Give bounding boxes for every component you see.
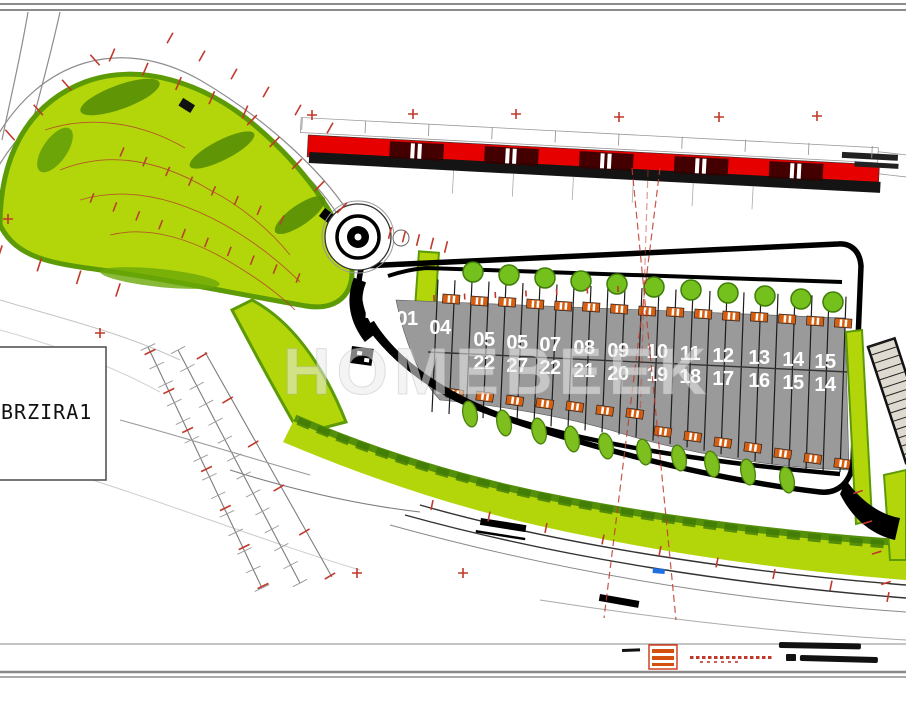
blue-mark xyxy=(653,568,665,574)
roof-icon xyxy=(626,408,644,419)
roof-icon xyxy=(498,297,516,307)
survey-tick xyxy=(199,400,213,407)
legend-caption-dash xyxy=(726,656,730,659)
roof-stripe xyxy=(447,295,450,302)
plot-number-bottom: 16 xyxy=(748,370,770,392)
roof-stripe xyxy=(648,308,651,315)
plot-number-top: 14 xyxy=(782,349,805,371)
legend-caption-dash xyxy=(762,656,766,659)
survey-tick xyxy=(163,388,174,393)
roof-body xyxy=(684,431,702,442)
watermark-text: HOMEBEEK xyxy=(283,334,712,408)
survey-cross-icon xyxy=(511,109,521,119)
right-hatched-building xyxy=(840,330,906,560)
survey-cross-icon xyxy=(812,111,822,121)
tree-icon xyxy=(823,292,843,312)
survey-tick xyxy=(284,561,298,568)
survey-tick xyxy=(222,397,232,403)
roof-body xyxy=(638,306,656,316)
survey-tick xyxy=(218,436,232,443)
survey-tick xyxy=(431,238,434,250)
legend-caption-dash xyxy=(720,656,724,659)
survey-tick xyxy=(246,566,260,573)
tree-icon xyxy=(681,280,701,300)
survey-cross-icon xyxy=(408,109,418,119)
red-building-strip xyxy=(298,118,906,218)
legend-caption-dash xyxy=(750,656,754,659)
roof-stripe xyxy=(811,317,814,324)
roof-icon xyxy=(774,448,792,459)
survey-tick xyxy=(158,381,172,388)
roof-body xyxy=(554,301,572,311)
roof-body xyxy=(750,312,768,322)
roof-stripe xyxy=(671,308,674,315)
roof-stripe xyxy=(564,303,567,310)
site-label-text: BRZIRA1 xyxy=(1,400,92,424)
survey-tick xyxy=(167,33,173,43)
tree-icon xyxy=(494,409,513,437)
survey-tick xyxy=(208,418,222,425)
survey-tick xyxy=(445,241,448,253)
roof-stripe xyxy=(508,299,511,306)
survey-tick xyxy=(428,124,429,136)
roof-body xyxy=(626,408,644,419)
roof-stripe xyxy=(788,316,791,323)
tree-icon xyxy=(529,417,548,445)
roof-stripe xyxy=(559,302,562,309)
legend-caption-dash xyxy=(738,656,742,659)
survey-cross-icon xyxy=(458,568,468,578)
roof-icon xyxy=(442,294,460,304)
survey-tick xyxy=(228,529,242,536)
roof-icon xyxy=(638,306,656,316)
roof-icon xyxy=(470,296,488,306)
survey-tick xyxy=(220,510,234,517)
plot-number-bottom: 15 xyxy=(782,372,804,394)
legend-dash xyxy=(622,648,640,652)
survey-tick xyxy=(492,127,493,139)
survey-tick xyxy=(197,353,207,359)
survey-tick xyxy=(745,140,746,152)
roof-body xyxy=(470,296,488,306)
survey-tick xyxy=(263,87,269,97)
roof-icon xyxy=(834,458,852,469)
roof-stripe xyxy=(503,298,506,305)
roof-body xyxy=(654,426,672,437)
legend-caption-dash xyxy=(707,661,710,663)
roof-stripe xyxy=(839,319,842,326)
roof-body xyxy=(778,314,796,324)
roof-body xyxy=(834,458,852,469)
roof-icon xyxy=(666,307,684,317)
roof-stripe xyxy=(783,315,786,322)
survey-tick xyxy=(773,569,775,579)
roof-stripe xyxy=(676,309,679,316)
roof-body xyxy=(442,294,460,304)
roof-stripe xyxy=(475,297,478,304)
roof-icon xyxy=(778,314,796,324)
survey-tick xyxy=(5,130,14,140)
roof-stripe xyxy=(620,306,623,313)
roof-icon xyxy=(714,437,732,448)
road-label-bar xyxy=(599,594,640,608)
survey-tick xyxy=(0,245,2,258)
legend-caption-dash xyxy=(728,661,731,663)
legend-caption-dash xyxy=(714,661,717,663)
survey-cross-icon xyxy=(614,112,624,122)
roof-stripe xyxy=(816,318,819,325)
roof-body xyxy=(694,309,712,319)
roof-stripe xyxy=(699,310,702,317)
survey-tick xyxy=(190,382,204,389)
roof-stripe xyxy=(615,305,618,312)
legend-caption-dash xyxy=(732,656,736,659)
site-plan-canvas: 0104052205270722082109201019111812171316… xyxy=(0,0,906,720)
roof-icon xyxy=(744,442,762,453)
legend-caption-dash xyxy=(768,656,772,659)
legend-caption-dash xyxy=(702,656,706,659)
roof-stripe xyxy=(760,314,763,321)
tree-icon xyxy=(755,286,775,306)
roof-body xyxy=(806,316,824,326)
survey-tick xyxy=(77,271,81,284)
legend-caption-dash xyxy=(696,656,700,659)
roof-icon xyxy=(610,304,628,314)
roof-body xyxy=(744,442,762,453)
plot-number-top: 12 xyxy=(712,345,734,367)
roof-stripe xyxy=(704,311,707,318)
survey-tick xyxy=(365,121,366,133)
roof-body xyxy=(722,311,740,321)
legend-caption-dash xyxy=(744,656,748,659)
roof-stripe xyxy=(755,313,758,320)
legend-caption-dash xyxy=(735,661,738,663)
roof-icon xyxy=(582,302,600,312)
survey-tick xyxy=(176,418,190,425)
roof-icon xyxy=(684,431,702,442)
survey-tick xyxy=(555,130,556,142)
roof-icon xyxy=(834,318,852,328)
roof-body xyxy=(526,299,544,309)
survey-tick xyxy=(180,364,194,371)
survey-tick xyxy=(830,581,832,591)
red-striped-building-swatch-icon xyxy=(649,645,677,669)
legend-red-caption xyxy=(690,656,772,663)
road-arrow-mark xyxy=(367,300,368,318)
survey-tick xyxy=(167,399,181,406)
roof-icon xyxy=(654,426,672,437)
tree-icon xyxy=(562,425,581,453)
roof-body xyxy=(834,318,852,328)
tree-icon xyxy=(634,438,653,466)
survey-tick xyxy=(716,558,718,568)
survey-tick xyxy=(293,579,307,586)
tree-icon xyxy=(644,277,664,297)
tree-icon xyxy=(463,262,483,282)
survey-tick xyxy=(295,105,301,115)
survey-cross-icon xyxy=(95,328,105,338)
plot-number-bottom: 14 xyxy=(814,374,837,396)
survey-tick xyxy=(171,346,185,353)
roof-body xyxy=(498,297,516,307)
roof-icon xyxy=(554,301,572,311)
site-label-box: BRZIRA1 xyxy=(0,347,106,480)
roof-stripe xyxy=(536,301,539,308)
survey-tick xyxy=(150,362,164,369)
legend-caption-dash xyxy=(700,661,703,663)
roof-icon xyxy=(750,312,768,322)
tree-icon xyxy=(718,283,738,303)
plot-number-top: 13 xyxy=(748,347,770,369)
roof-stripe xyxy=(452,296,455,303)
survey-tick xyxy=(682,137,683,149)
roof-stripe xyxy=(732,313,735,320)
plot-number-bottom: 17 xyxy=(712,368,734,390)
survey-tick xyxy=(227,454,241,461)
roof-stripe xyxy=(531,300,534,307)
survey-tick xyxy=(872,146,873,158)
survey-tick xyxy=(265,526,279,533)
survey-tick xyxy=(199,51,205,61)
roof-body xyxy=(714,437,732,448)
legend-caption-dash xyxy=(708,656,712,659)
roof-icon xyxy=(694,309,712,319)
legend-scale-bars xyxy=(779,642,878,663)
tree-icon xyxy=(499,265,519,285)
roof-stripe xyxy=(727,312,730,319)
roundabout-island xyxy=(393,230,409,246)
survey-tick xyxy=(231,69,237,79)
tree-icon xyxy=(596,432,615,460)
roof-stripe xyxy=(592,304,595,311)
roof-icon xyxy=(526,299,544,309)
roof-body xyxy=(610,304,628,314)
legend xyxy=(622,642,878,669)
tree-icon xyxy=(607,274,627,294)
roof-body xyxy=(666,307,684,317)
survey-tick xyxy=(211,492,225,499)
legend-caption-dash xyxy=(714,656,718,659)
survey-tick xyxy=(116,283,120,296)
tree-icon xyxy=(791,289,811,309)
survey-tick xyxy=(246,490,260,497)
survey-tick xyxy=(808,143,809,155)
roof-stripe xyxy=(587,303,590,310)
roof-icon xyxy=(722,311,740,321)
survey-tick xyxy=(302,118,303,130)
survey-tick xyxy=(887,592,889,602)
site-plan-page: 0104052205270722082109201019111812171316… xyxy=(0,0,906,720)
tree-icon xyxy=(535,268,555,288)
legend-caption-dash xyxy=(756,656,760,659)
roof-body xyxy=(774,448,792,459)
survey-tick xyxy=(193,455,207,462)
roof-body xyxy=(582,302,600,312)
survey-cross-icon xyxy=(352,568,362,578)
survey-cross-icon xyxy=(714,112,724,122)
survey-tick xyxy=(255,508,269,515)
survey-tick xyxy=(109,49,115,62)
roof-stripe xyxy=(844,320,847,327)
survey-tick xyxy=(417,234,420,246)
legend-caption-dash xyxy=(690,656,694,659)
plot-number-top: 01 xyxy=(396,308,418,330)
legend-caption-dash xyxy=(721,661,724,663)
roof-stripe xyxy=(480,298,483,305)
roof-icon xyxy=(804,453,822,464)
roof-body xyxy=(804,453,822,464)
roof-icon xyxy=(806,316,824,326)
survey-tick xyxy=(202,473,216,480)
survey-tick xyxy=(618,134,619,146)
plot-number-top: 15 xyxy=(814,351,836,373)
